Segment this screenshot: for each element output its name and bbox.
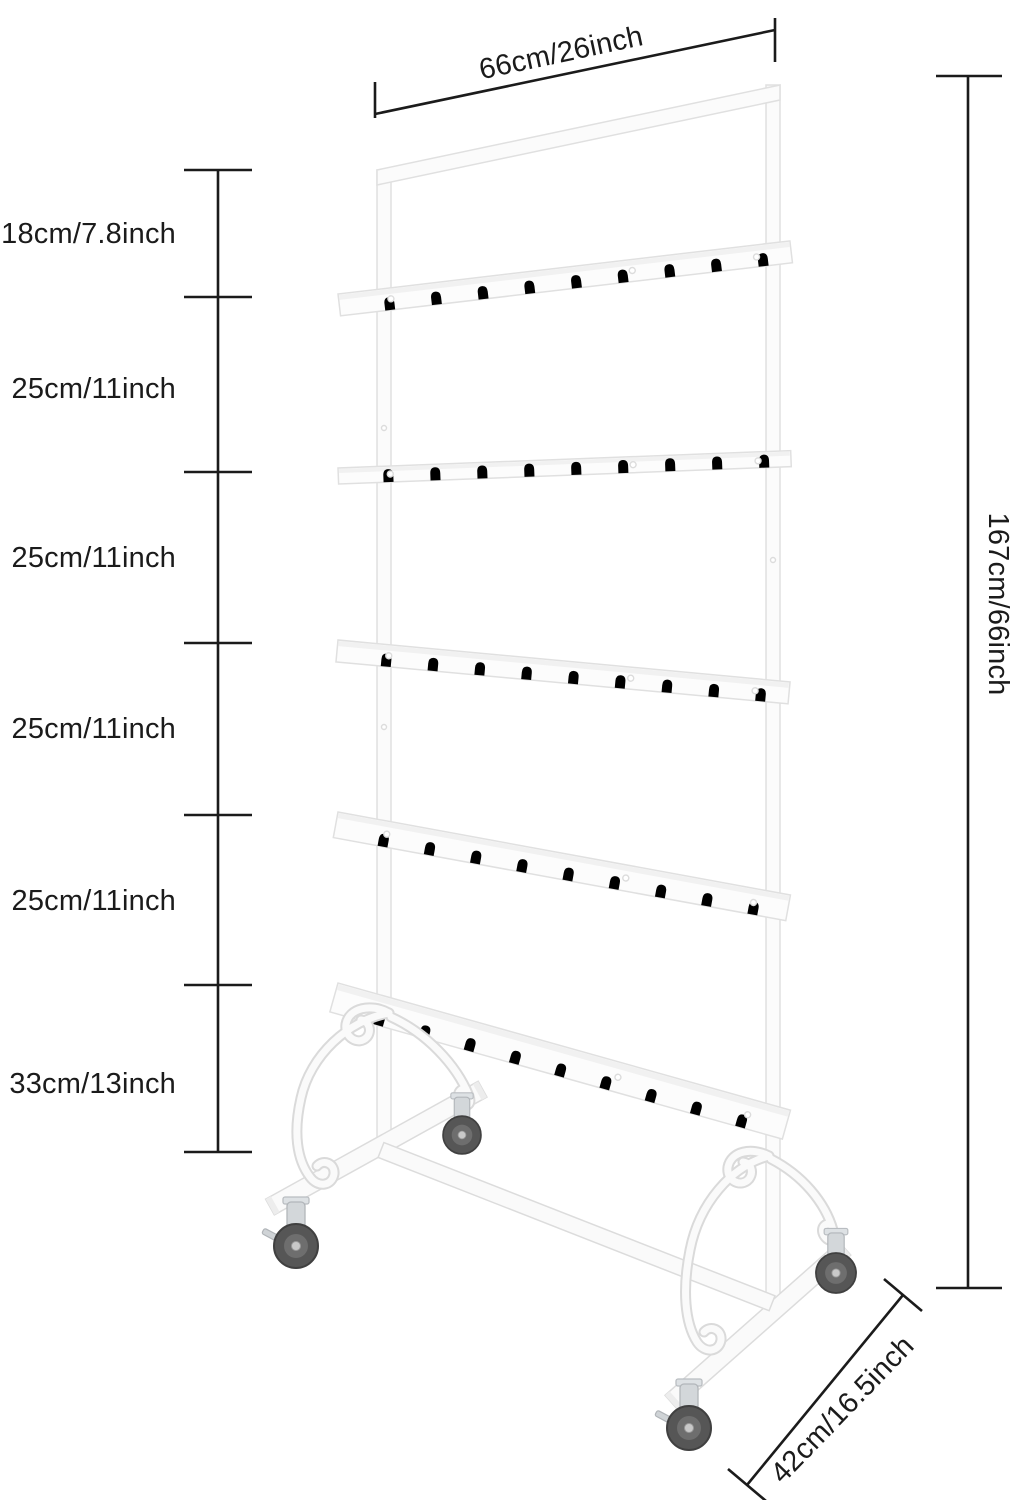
shelf-5 [330, 983, 791, 1139]
caster-front-right [655, 1379, 711, 1450]
segment-label-5: 25cm/11inch [12, 885, 176, 917]
width-dimension-label: 66cm/26inch [476, 20, 646, 86]
base-center-bar [378, 1143, 775, 1311]
segment-label-4: 25cm/11inch [12, 713, 176, 745]
product-dimension-diagram: 66cm/26inch 18cm/7.8inch 25cm/11inch 25c… [0, 0, 1015, 1500]
height-dimension-label: 167cm/66inch [982, 513, 1014, 696]
shelf-4 [333, 812, 790, 921]
shelf-3 [336, 640, 790, 704]
depth-dimension-label: 42cm/16.5inch [765, 1330, 921, 1490]
shelf-2 [338, 451, 791, 484]
height-segments-dimension [184, 170, 252, 1152]
dimension-lines [184, 18, 1002, 1500]
segment-label-2: 25cm/11inch [12, 373, 176, 405]
segment-label-6: 33cm/13inch [9, 1068, 176, 1100]
diagram-canvas: 66cm/26inch 18cm/7.8inch 25cm/11inch 25c… [0, 0, 1015, 1500]
depth-dimension [728, 1279, 922, 1500]
segment-label-3: 25cm/11inch [12, 542, 176, 574]
dimension-labels: 66cm/26inch 18cm/7.8inch 25cm/11inch 25c… [1, 20, 1014, 1489]
rack [262, 85, 856, 1450]
post-screws [382, 426, 776, 1025]
shelf-1 [338, 241, 792, 316]
segment-label-1: 18cm/7.8inch [1, 218, 176, 250]
